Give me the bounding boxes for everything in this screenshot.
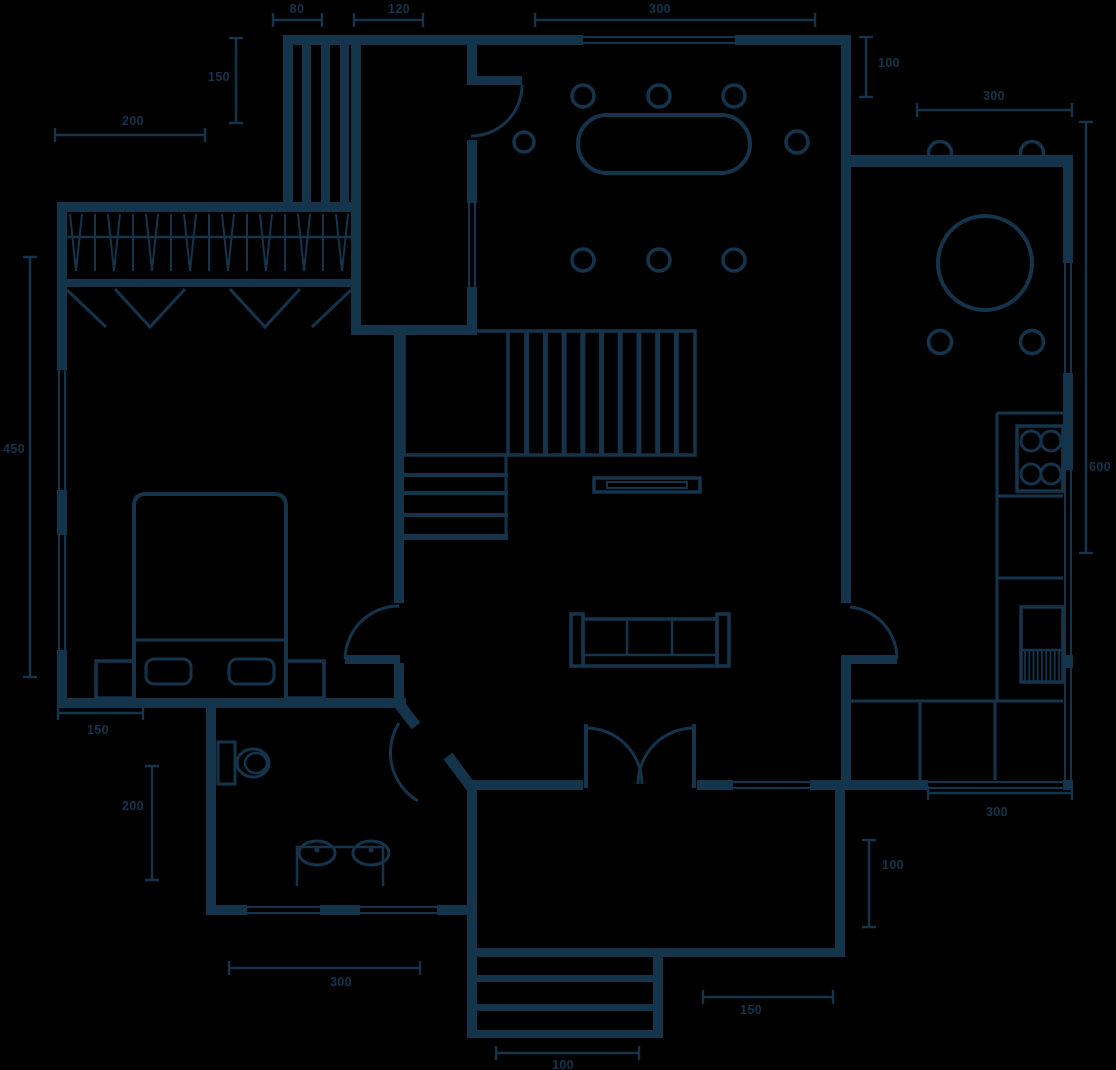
kitchen-table (938, 216, 1032, 310)
vanity-double-sink (297, 841, 389, 886)
dim-mudroom-top-label: 120 (388, 2, 410, 16)
dim-bed-bottom-label: 150 (87, 723, 109, 737)
burner (1021, 464, 1041, 484)
dim-mudroom-top: 120 (354, 2, 423, 27)
faucet (315, 848, 320, 853)
dim-kitchen-top-label: 300 (983, 89, 1005, 103)
double-door-entry (586, 724, 694, 788)
step (477, 1004, 653, 1011)
floor-plan-canvas: 8012030015020010030060045015020030015010… (0, 0, 1116, 1070)
window-kitchen-bottom (928, 782, 1063, 788)
door-bathroom (390, 723, 418, 801)
dim-bed-bottom: 150 (58, 706, 143, 737)
window-dining-interior (469, 203, 475, 287)
dim-bathroom-bottom-label: 300 (330, 975, 352, 989)
dim-bathroom-left-label: 200 (122, 799, 144, 813)
dim-closet-left-label: 150 (208, 70, 230, 84)
dining-chair (648, 85, 670, 107)
window-dining-top (583, 37, 735, 43)
pillow (146, 659, 191, 684)
dining-chair (572, 249, 594, 271)
dim-upper-left: 200 (55, 114, 205, 142)
closet-divider (302, 45, 311, 202)
kitchen-set (851, 142, 1063, 781)
sofa-arm (717, 614, 729, 666)
dining-chair (514, 132, 534, 152)
dishwasher-hatch (1025, 651, 1059, 681)
window-bathroom-bottom-1 (247, 907, 320, 913)
burner (1021, 431, 1041, 451)
dining-chair (648, 249, 670, 271)
dim-upper-left-label: 200 (122, 114, 144, 128)
wardrobe-shelf (67, 279, 351, 287)
burner (1041, 464, 1061, 484)
closet-divider (340, 45, 349, 202)
floor-plan: 8012030015020010030060045015020030015010… (0, 0, 1116, 1070)
dim-dining-right-label: 100 (878, 56, 900, 70)
door-bedroom (345, 606, 400, 664)
dim-kitchen-right-label: 600 (1089, 460, 1111, 474)
pillow (229, 659, 274, 684)
dim-kitchen-bottom-label: 300 (986, 805, 1008, 819)
window-entry-top (733, 782, 810, 788)
stair-treads (527, 331, 677, 455)
kitchen-chair (929, 331, 952, 354)
dining-chair (572, 85, 594, 107)
kitchen-chair (1021, 331, 1044, 354)
dim-bathroom-left: 200 (122, 766, 159, 880)
porch-steps (467, 957, 663, 1038)
dim-closet-top: 80 (273, 2, 322, 27)
bathroom-door-jamb (448, 756, 471, 787)
dim-dining-top-label: 300 (649, 2, 671, 16)
dishwasher (1021, 607, 1063, 682)
dim-bathroom-bottom: 300 (229, 961, 420, 989)
bathroom-set (218, 742, 389, 886)
dining-chair (786, 131, 808, 153)
window-bathroom-bottom-2 (360, 907, 437, 913)
dim-kitchen-bottom: 300 (928, 786, 1072, 819)
door-kitchen (841, 607, 897, 664)
sofa (571, 614, 729, 666)
faucet (369, 848, 374, 853)
dining-table (578, 115, 750, 173)
window-bedroom-left-2 (59, 535, 65, 650)
stove (1017, 426, 1063, 491)
wardrobe-hangers (70, 214, 348, 271)
dim-kitchen-right: 600 (1079, 122, 1111, 553)
hanging-clothes (115, 289, 185, 327)
window-kitchen-right-2 (1065, 470, 1071, 655)
bedroom-set (67, 214, 351, 708)
sink (299, 841, 335, 865)
wardrobe (67, 214, 351, 327)
closet-divider (321, 45, 330, 202)
bed (134, 494, 286, 708)
nightstand (96, 661, 134, 698)
burner (1041, 431, 1061, 451)
nightstand (286, 661, 324, 698)
dim-bedroom-left-label: 450 (3, 442, 25, 456)
staircase (404, 331, 695, 540)
dim-entry-right-label: 150 (740, 1003, 762, 1017)
dining-chair (723, 249, 745, 271)
door-mudroom (467, 76, 522, 136)
dim-closet-top-label: 80 (290, 2, 305, 16)
dim-kitchen-top: 300 (917, 89, 1072, 117)
kitchen-counter (851, 413, 1063, 780)
step (477, 975, 653, 982)
hanging-clothes (230, 289, 300, 327)
bathroom-door-jamb (399, 704, 416, 726)
dim-bedroom-left: 450 (3, 257, 37, 677)
dim-entry-right: 150 (703, 990, 833, 1017)
tv (594, 478, 700, 492)
dining-set (514, 85, 808, 271)
sofa-arm (571, 614, 583, 666)
window-bedroom-left-1 (59, 370, 65, 490)
hanging-clothes (312, 290, 351, 327)
hanging-clothes (67, 290, 106, 327)
window-kitchen-right-3 (1065, 668, 1071, 780)
dim-porch-steps-label: 100 (552, 1058, 574, 1070)
living-set (571, 478, 729, 666)
dim-dining-top: 300 (535, 2, 815, 27)
dim-kitchen-low-right: 100 (862, 840, 904, 927)
dim-porch-steps: 100 (496, 1046, 639, 1070)
dining-chair (723, 85, 745, 107)
toilet (218, 742, 269, 784)
dim-closet-left: 150 (208, 38, 243, 123)
window-kitchen-right-1 (1065, 263, 1071, 373)
dim-kitchen-low-right-label: 100 (882, 858, 904, 872)
dim-dining-right: 100 (859, 37, 900, 97)
